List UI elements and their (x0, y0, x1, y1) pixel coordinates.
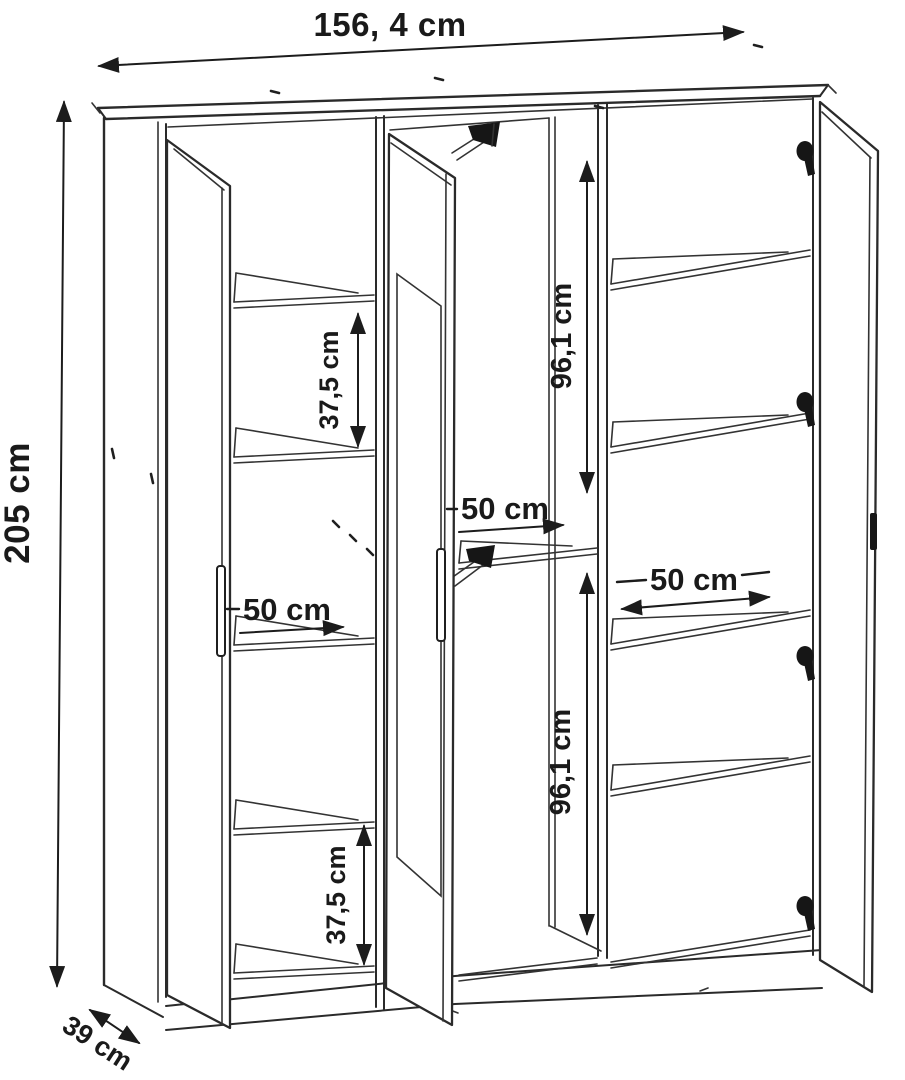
dim-label: 37,5 cm (321, 845, 351, 944)
dim-left-upper-gap: 37,5 cm (314, 314, 358, 446)
plinth-bottom-edge (166, 988, 822, 1030)
bay-floor (459, 958, 597, 981)
top-panel-front-edge (106, 96, 820, 119)
shelf (611, 413, 810, 453)
door-handle-icon (437, 549, 445, 641)
dim-line (57, 102, 64, 986)
shelf (234, 800, 374, 835)
dim-right-column-width: 50 cm (617, 562, 769, 609)
top-panel-back-edge (98, 85, 828, 108)
dim-middle-lower-height: 96,1 cm (545, 574, 587, 934)
dim-label: 96,1 cm (545, 709, 577, 815)
mirror-door-ajar (386, 134, 455, 1025)
dim-left-lower-gap: 37,5 cm (321, 826, 364, 964)
dim-label: 96,1 cm (546, 283, 578, 389)
dim-label: 50 cm (243, 592, 331, 627)
top-panel-right-end (820, 85, 828, 96)
door-handle-icon (870, 513, 877, 550)
dim-label: 156, 4 cm (313, 6, 466, 43)
dim-left-column-width: 50 cm (227, 592, 343, 633)
shelf-pin-marks (333, 521, 373, 555)
dim-line (459, 525, 563, 532)
dim-overall-width: 156, 4 cm (99, 6, 743, 66)
shelf (611, 610, 810, 650)
dim-overall-depth: 39 cm (57, 1010, 139, 1077)
shelf (611, 756, 810, 796)
dim-label: 50 cm (461, 491, 549, 526)
top-panel-door-joint (828, 85, 836, 93)
hinge-icon (797, 141, 816, 176)
center-hanging-bay (450, 122, 597, 981)
hinge-icon (797, 392, 816, 427)
clothes-rail-bracket-icon (450, 545, 495, 586)
clothes-rail-bracket-icon (452, 122, 500, 160)
dim-label: 50 cm (650, 562, 738, 597)
dim-middle-upper-height: 96,1 cm (546, 162, 587, 492)
back-bottom-edge (550, 926, 601, 951)
dim-leader-tick (742, 572, 769, 575)
left-door-open (167, 140, 230, 1028)
shelf (234, 273, 374, 308)
dim-line (240, 627, 343, 633)
hinge-icon (797, 646, 816, 681)
dim-leader-tick (617, 580, 646, 582)
shelf (611, 250, 810, 290)
dim-overall-height: 205 cm (0, 102, 64, 986)
dim-label: 37,5 cm (314, 330, 344, 429)
dim-label: 205 cm (0, 442, 37, 564)
bottom-shelf (234, 944, 374, 979)
dim-line (622, 597, 769, 609)
left-side-bottom-edge (104, 985, 163, 1017)
drawing-svg: 156, 4 cm 205 cm 39 cm 37,5 cm 37,5 cm 9… (0, 0, 905, 1080)
dim-label: 39 cm (57, 1010, 138, 1077)
shelf (234, 428, 374, 463)
right-door-open (797, 102, 879, 992)
hinge-icon (797, 896, 816, 931)
wardrobe-technical-drawing: 156, 4 cm 205 cm 39 cm 37,5 cm 37,5 cm 9… (0, 0, 905, 1080)
foot-mark-right (700, 988, 708, 991)
dim-middle-column-width: 50 cm (447, 491, 563, 532)
right-shelf-column (611, 250, 810, 968)
door-handle-icon (217, 566, 225, 656)
